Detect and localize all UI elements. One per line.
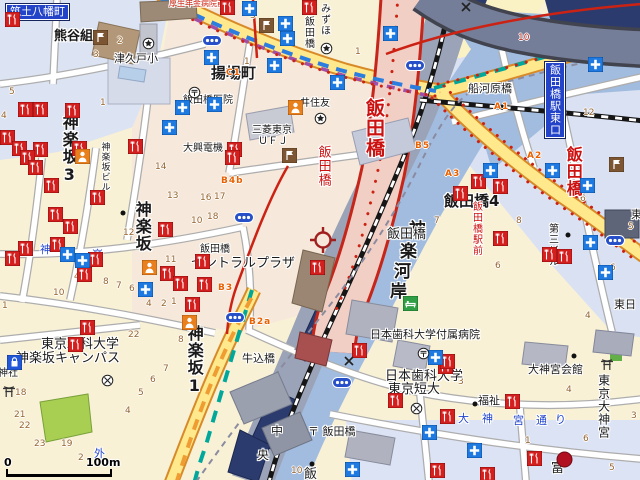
- restaurant-icon: [302, 0, 317, 15]
- block-number: 10: [291, 466, 302, 476]
- hospital-icon: [345, 462, 360, 477]
- post-office-icon: [188, 86, 201, 99]
- block-number: 1: [2, 301, 8, 311]
- hospital-icon: [467, 443, 482, 458]
- map-overlay: 筑土八幡町熊谷組津久戸小厚生年金病院前みずほ飯田橋揚場町飯田橋医院井住友三菱東京…: [0, 0, 640, 480]
- map-label: 船河原橋: [468, 83, 512, 95]
- map-label: 飯田橋駅前: [470, 201, 481, 256]
- salon-icon: [182, 315, 197, 330]
- restaurant-icon: [18, 241, 33, 256]
- map-label: 三菱東京: [252, 126, 292, 137]
- restaurant-icon: [77, 267, 92, 282]
- restaurant-icon: [158, 222, 173, 237]
- map-label: 河: [394, 264, 411, 282]
- block-number: 13: [167, 191, 178, 201]
- map-label: 福祉: [478, 395, 500, 407]
- map-label: 東日: [614, 299, 636, 311]
- block-number: 6: [129, 284, 135, 294]
- hospital-icon: [75, 253, 90, 268]
- restaurant-icon: [185, 297, 200, 312]
- subway-entrance-icon: [605, 235, 625, 246]
- hospital-icon: [207, 97, 222, 112]
- block-number: 5: [9, 87, 15, 97]
- subway-entrance-icon: [225, 312, 245, 323]
- restaurant-icon: [493, 231, 508, 246]
- block-number: 12: [583, 108, 594, 118]
- restaurant-icon: [18, 102, 33, 117]
- restaurant-icon: [5, 12, 20, 27]
- bank-icon: [320, 42, 333, 55]
- subway-exit-label: A1: [494, 102, 509, 112]
- map-label: 大興電機: [183, 144, 223, 155]
- block-number: 11: [165, 255, 176, 265]
- block-number: 10: [518, 33, 529, 43]
- hospital-icon: [598, 265, 613, 280]
- block-number: 8: [178, 335, 184, 345]
- shrine-torii-icon: [600, 358, 614, 371]
- restaurant-icon: [5, 251, 20, 266]
- salon-icon: [288, 100, 303, 115]
- map-label: みずほ: [318, 3, 329, 36]
- map-label: 飯田橋: [387, 228, 426, 242]
- hospital-icon: [383, 26, 398, 41]
- block-number: 5: [628, 222, 634, 232]
- restaurant-icon: [430, 463, 445, 478]
- school-icon: [101, 374, 114, 387]
- block-number: 21: [14, 410, 25, 420]
- restaurant-icon: [440, 409, 455, 424]
- map-label: 飯田橋: [302, 16, 313, 49]
- map-label: 熊谷組: [54, 30, 93, 44]
- block-number: 14: [155, 162, 166, 172]
- block-number: 3: [631, 411, 637, 421]
- salon-icon: [75, 149, 90, 164]
- block-number: 7: [116, 281, 122, 291]
- map-label: 神楽坂: [133, 201, 150, 252]
- block-number: 3: [93, 50, 99, 60]
- building-dot-icon: [565, 232, 571, 238]
- block-number: 2: [161, 299, 167, 309]
- restaurant-icon: [33, 102, 48, 117]
- hospital-icon: [138, 282, 153, 297]
- shop-icon: [7, 355, 22, 370]
- block-number: 10: [191, 216, 202, 226]
- landmark-flag-icon: [93, 30, 108, 45]
- subway-exit-label: A3: [445, 169, 460, 179]
- restaurant-icon: [173, 276, 188, 291]
- block-number: 4: [566, 385, 572, 395]
- map-label: ＵＦＪ: [258, 137, 288, 148]
- map-label: 神楽坂ビル: [99, 142, 108, 192]
- landmark-flag-icon: [609, 157, 624, 172]
- map-label: 神: [482, 413, 493, 425]
- restaurant-icon: [352, 343, 367, 358]
- block-number: 4: [146, 299, 152, 309]
- restaurant-icon: [225, 150, 240, 165]
- restaurant-icon: [88, 252, 103, 267]
- block-number: 22: [19, 421, 30, 431]
- subway-exit-label: B2a: [249, 317, 271, 327]
- restaurant-icon: [195, 254, 210, 269]
- subway-exit-label: B3: [218, 283, 233, 293]
- subway-entrance-icon: [234, 212, 254, 223]
- block-number: 4: [1, 111, 7, 121]
- hospital-icon: [242, 1, 257, 16]
- hospital-icon: [428, 350, 443, 365]
- building-dot-icon: [472, 401, 478, 407]
- hospital-icon: [280, 31, 295, 46]
- block-number: 18: [15, 388, 26, 398]
- post-office-icon: [417, 347, 430, 360]
- hospital-icon: [545, 163, 560, 178]
- scale-end: 100m: [86, 456, 120, 469]
- building-dot-icon: [120, 210, 126, 216]
- police-box-icon: [344, 356, 354, 366]
- restaurant-icon: [63, 219, 78, 234]
- block-number: 5: [609, 463, 615, 473]
- block-number: 17: [214, 192, 225, 202]
- map-label: 神楽坂1: [185, 325, 202, 396]
- hospital-icon: [580, 178, 595, 193]
- hospital-icon: [278, 16, 293, 31]
- subway-exit-label: C1: [226, 68, 241, 78]
- map-label: 飯田橋: [363, 98, 383, 158]
- map-label: 〒 飯田橋: [308, 426, 356, 438]
- block-number: 7: [163, 364, 169, 374]
- landmark-flag-icon: [259, 18, 274, 33]
- restaurant-icon: [505, 394, 520, 409]
- block-number: 5: [138, 388, 144, 398]
- hospital-icon: [204, 50, 219, 65]
- block-number: 18: [207, 212, 218, 222]
- map-canvas[interactable]: 筑土八幡町熊谷組津久戸小厚生年金病院前みずほ飯田橋揚場町飯田橋医院井住友三菱東京…: [0, 0, 640, 480]
- block-number: 4: [585, 311, 591, 321]
- map-label: 飯: [304, 468, 317, 480]
- restaurant-icon: [493, 179, 508, 194]
- scale-start: 0: [4, 456, 12, 469]
- map-label: 大神宮会館: [528, 364, 583, 376]
- map-label: り: [555, 414, 566, 426]
- subway-exit-label: B5: [415, 141, 430, 151]
- map-label: 牛込橋: [242, 353, 275, 365]
- block-number: 6: [150, 375, 156, 385]
- restaurant-icon: [388, 393, 403, 408]
- restaurant-icon: [453, 186, 468, 201]
- hospital-icon: [175, 100, 190, 115]
- bank-icon: [142, 37, 155, 50]
- school-icon: [410, 402, 423, 415]
- scale-bar: 0 100m: [4, 456, 12, 469]
- building-dot-icon: [571, 353, 577, 359]
- restaurant-icon: [128, 139, 143, 154]
- shrine-torii-icon: [2, 385, 16, 398]
- station-name-plate: 飯田橋駅東口: [545, 62, 565, 138]
- salon-icon: [142, 260, 157, 275]
- block-number: 1: [355, 47, 361, 57]
- subway-entrance-icon: [405, 60, 425, 71]
- restaurant-icon: [48, 207, 63, 222]
- restaurant-icon: [80, 320, 95, 335]
- scale-bar-line: [6, 469, 112, 477]
- restaurant-icon: [557, 249, 572, 264]
- block-number: 6: [495, 261, 501, 271]
- hospital-icon: [267, 58, 282, 73]
- map-label: 東: [631, 209, 640, 221]
- hospital-icon: [162, 120, 177, 135]
- block-number: 6: [583, 434, 589, 444]
- map-center-crosshair: [309, 226, 337, 254]
- restaurant-icon: [480, 467, 495, 480]
- poi-red-circle-icon: [556, 451, 573, 468]
- restaurant-icon: [90, 190, 105, 205]
- restaurant-icon: [44, 178, 59, 193]
- hotel-icon: [403, 296, 418, 311]
- restaurant-icon: [33, 142, 48, 157]
- map-label: 日本歯科大学付属病院: [370, 329, 480, 341]
- restaurant-icon: [28, 160, 43, 175]
- bank-icon: [314, 112, 327, 125]
- map-label: 津久戸小: [114, 53, 158, 65]
- map-label: 楽: [400, 244, 417, 262]
- map-label: 井住友: [300, 99, 330, 110]
- block-number: 19: [61, 439, 72, 449]
- block-number: 2: [78, 453, 84, 463]
- building-dot-icon: [309, 461, 315, 467]
- hospital-icon: [588, 57, 603, 72]
- restaurant-icon: [220, 0, 235, 15]
- map-label: 厚生年金病院前: [169, 0, 225, 8]
- hospital-icon: [583, 235, 598, 250]
- restaurant-icon: [527, 451, 542, 466]
- map-label: 飯田橋: [564, 146, 581, 197]
- hospital-icon: [483, 163, 498, 178]
- map-label: 宮: [513, 415, 524, 427]
- block-number: 8: [516, 216, 522, 226]
- restaurant-icon: [197, 277, 212, 292]
- map-label: 央: [257, 449, 269, 462]
- subway-exit-label: B4b: [221, 176, 244, 186]
- subway-entrance-icon: [202, 35, 222, 46]
- restaurant-icon: [65, 103, 80, 118]
- restaurant-icon: [310, 260, 325, 275]
- hospital-icon: [330, 75, 345, 90]
- block-number: 16: [200, 193, 211, 203]
- block-number: 10: [53, 288, 64, 298]
- map-label: 大: [458, 413, 469, 425]
- block-number: 1: [100, 98, 106, 108]
- hospital-icon: [422, 425, 437, 440]
- restaurant-icon: [68, 337, 83, 352]
- map-label: 飯田橋: [316, 145, 330, 187]
- block-number: 1: [171, 297, 177, 307]
- block-number: 7: [434, 216, 440, 226]
- block-number: 22: [128, 330, 139, 340]
- map-label: 中: [271, 425, 283, 438]
- block-number: 4: [125, 406, 131, 416]
- restaurant-icon: [542, 247, 557, 262]
- hospital-icon: [60, 247, 75, 262]
- block-number: 23: [34, 439, 45, 449]
- map-label: 神楽坂キャンパス: [16, 352, 120, 366]
- map-label: 神社: [0, 369, 18, 380]
- block-number: 8: [103, 277, 109, 287]
- block-number: 1: [525, 436, 531, 446]
- police-box-icon: [461, 2, 471, 12]
- subway-exit-label: A2: [527, 151, 542, 161]
- map-label: 東京大神宮: [597, 374, 610, 439]
- subway-entrance-icon: [332, 377, 352, 388]
- map-label: 通: [536, 415, 547, 427]
- landmark-flag-icon: [282, 148, 297, 163]
- block-number: 2: [117, 36, 123, 46]
